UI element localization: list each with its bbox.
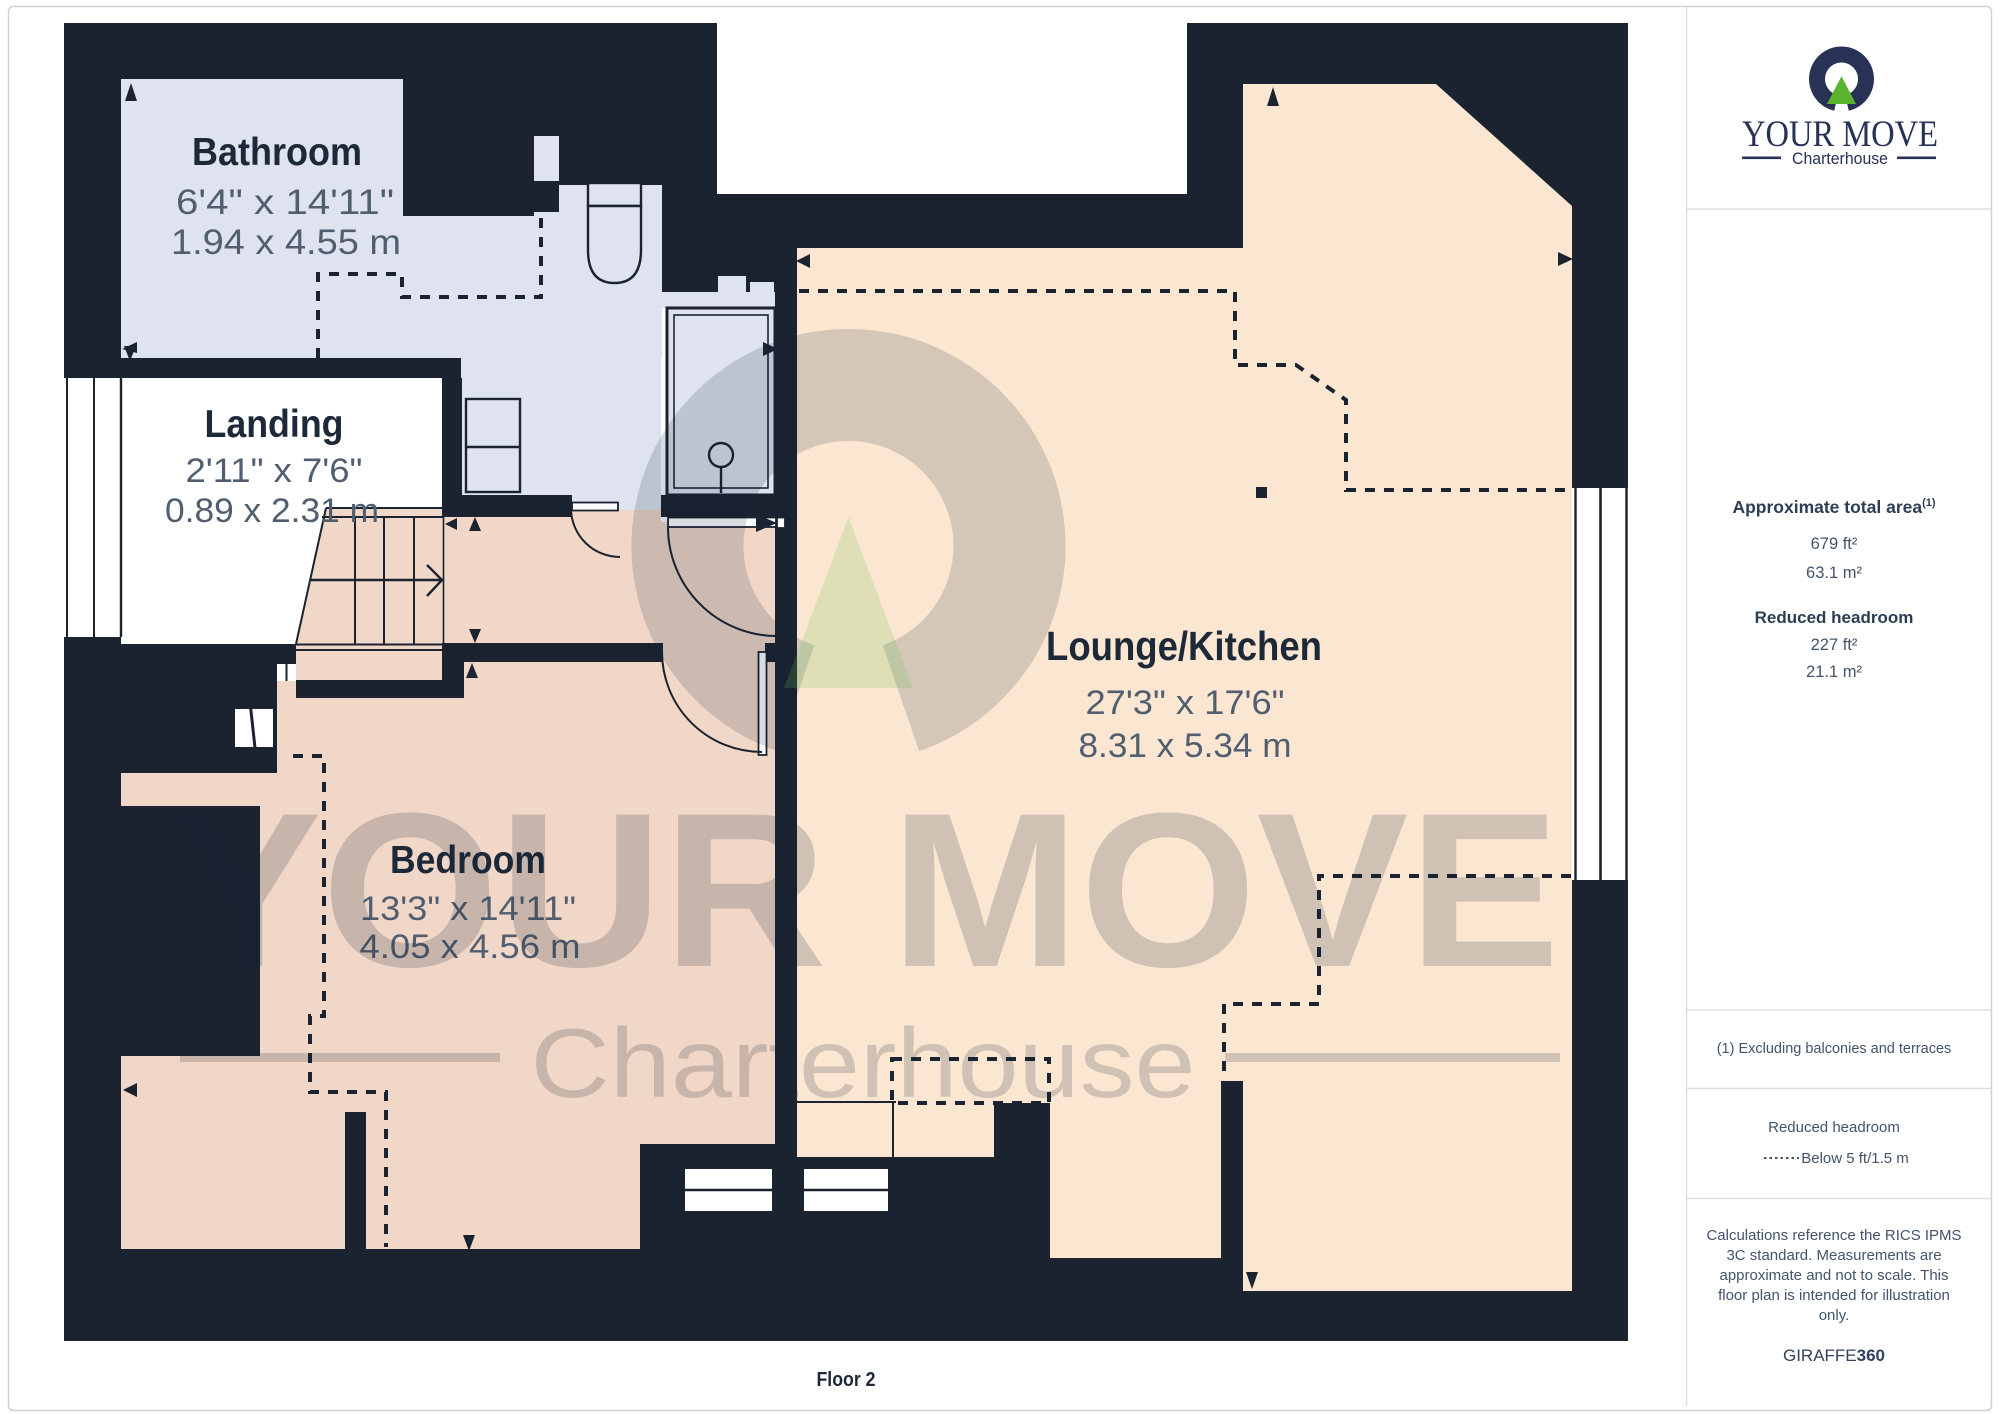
svg-text:(1) Excluding balconies and te: (1) Excluding balconies and terraces xyxy=(1717,1041,1952,1057)
svg-text:Calculations reference the RIC: Calculations reference the RICS IPMS xyxy=(1706,1227,1961,1244)
svg-text:YOUR MOVE: YOUR MOVE xyxy=(170,767,1560,1013)
svg-text:21.1 m²: 21.1 m² xyxy=(1806,663,1862,681)
svg-text:YOUR MOVE: YOUR MOVE xyxy=(1742,114,1938,155)
svg-text:0.89 x 2.31 m: 0.89 x 2.31 m xyxy=(165,492,379,530)
svg-text:GIRAFFE360: GIRAFFE360 xyxy=(1783,1346,1885,1365)
svg-text:Below 5 ft/1.5 m: Below 5 ft/1.5 m xyxy=(1801,1150,1909,1167)
svg-text:Lounge/Kitchen: Lounge/Kitchen xyxy=(1046,623,1322,669)
svg-text:3C standard. Measurements are: 3C standard. Measurements are xyxy=(1726,1247,1941,1264)
svg-text:27'3" x 17'6": 27'3" x 17'6" xyxy=(1086,684,1285,722)
svg-text:Reduced headroom: Reduced headroom xyxy=(1768,1119,1900,1136)
svg-text:2'11" x 7'6": 2'11" x 7'6" xyxy=(186,452,363,490)
svg-text:679 ft²: 679 ft² xyxy=(1811,535,1858,553)
svg-text:Floor 2: Floor 2 xyxy=(817,1369,876,1391)
svg-text:Charterhouse: Charterhouse xyxy=(531,1008,1196,1118)
svg-text:63.1 m²: 63.1 m² xyxy=(1806,564,1862,582)
svg-text:approximate and not to scale.: approximate and not to scale. This xyxy=(1719,1267,1948,1284)
svg-text:Landing: Landing xyxy=(205,403,344,446)
svg-text:Charterhouse: Charterhouse xyxy=(1792,150,1888,168)
svg-text:Reduced headroom: Reduced headroom xyxy=(1755,608,1914,627)
svg-text:only.: only. xyxy=(1819,1307,1850,1324)
svg-text:6'4" x 14'11": 6'4" x 14'11" xyxy=(176,183,394,222)
svg-text:1.94 x 4.55 m: 1.94 x 4.55 m xyxy=(171,223,401,262)
svg-text:Approximate total area(1): Approximate total area(1) xyxy=(1732,497,1935,517)
svg-text:Bathroom: Bathroom xyxy=(192,131,362,174)
svg-text:floor plan is intended for ill: floor plan is intended for illustration xyxy=(1718,1287,1950,1304)
svg-text:227 ft²: 227 ft² xyxy=(1811,636,1858,654)
svg-text:8.31 x 5.34 m: 8.31 x 5.34 m xyxy=(1079,727,1292,765)
